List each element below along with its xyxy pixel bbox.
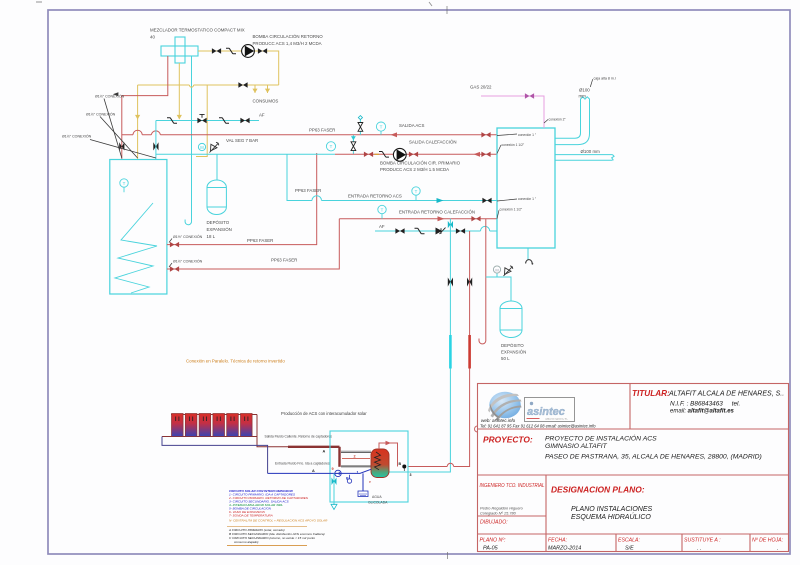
svg-text:PASEO DE PASTRANA, 35, ALCALA: PASEO DE PASTRANA, 35, ALCALA DE HENARES… <box>545 454 762 461</box>
svg-text:Colegiado Nº 15.780: Colegiado Nº 15.780 <box>480 511 517 516</box>
svg-text:EXPANSIÓN: EXPANSIÓN <box>207 227 232 232</box>
svg-text:T: T <box>415 189 418 194</box>
svg-text:B: B <box>399 462 402 466</box>
svg-text:Ø1½" CONEXIÓN: Ø1½" CONEXIÓN <box>86 112 116 117</box>
svg-text:EXPANSIÓN: EXPANSIÓN <box>501 350 526 355</box>
svg-text:Ø1½" CONEXIÓN: Ø1½" CONEXIÓN <box>173 234 203 239</box>
svg-text:T: T <box>123 181 126 186</box>
svg-text:Conexión en Paralelo. Técnica: Conexión en Paralelo. Técnica de retorno… <box>186 359 285 364</box>
svg-text:DESIGNACION PLANO:: DESIGNACION PLANO: <box>551 485 645 495</box>
svg-text:DEPÓSITO: DEPÓSITO <box>501 343 524 348</box>
svg-text:Entrada Fluido Frío. Ida a cap: Entrada Fluido Frío. Ida a captadores <box>275 462 330 466</box>
svg-text:T: T <box>381 207 384 212</box>
svg-text:ALTAFIT ALCALA DE HENARES, S..: ALTAFIT ALCALA DE HENARES, S.. <box>668 391 784 398</box>
svg-text:AF: AF <box>259 113 265 118</box>
svg-text:Ø1½" CONEXIÓN: Ø1½" CONEXIÓN <box>95 94 125 99</box>
svg-text:BOMBA CIRCULACIÓN CIR. PRIMARI: BOMBA CIRCULACIÓN CIR. PRIMARIO <box>380 160 461 165</box>
svg-text:Tel: 91 641 87 95 Fax 91 61: Tel: 91 641 87 95 Fax 91 612 64 08 email… <box>480 424 596 429</box>
svg-text:T: T <box>380 125 383 130</box>
svg-text:PA-05: PA-05 <box>483 546 499 552</box>
svg-text:ENTRADA RETORNO ACS: ENTRADA RETORNO ACS <box>348 194 402 199</box>
svg-text:. .: . . <box>697 546 702 552</box>
svg-text:PP63 FASER: PP63 FASER <box>309 128 335 133</box>
svg-text:GIMNASIO ALTAFIT: GIMNASIO ALTAFIT <box>545 443 608 450</box>
svg-text:Ø100: Ø100 <box>579 88 590 93</box>
svg-text:PLANO INSTALACIONES: PLANO INSTALACIONES <box>571 506 653 513</box>
svg-text:PROYECTO:: PROYECTO: <box>483 435 533 445</box>
svg-text:7- SONDA DE TEMPERATURA: 7- SONDA DE TEMPERATURA <box>229 514 273 518</box>
svg-text:M: M <box>200 145 204 150</box>
svg-text:web: asintec.info: web: asintec.info <box>481 418 516 423</box>
svg-text:conexión 1 1/2": conexión 1 1/2" <box>500 208 523 212</box>
svg-text:Producción de ACS con interacu: Producción de ACS con interacumulador so… <box>281 411 367 416</box>
svg-text:GLICOLADA: GLICOLADA <box>368 501 388 505</box>
svg-text:.: . <box>777 546 779 552</box>
svg-text:consumo alejado): consumo alejado) <box>234 540 258 544</box>
svg-text:Ø1½" CONEXIÓN: Ø1½" CONEXIÓN <box>62 134 92 139</box>
svg-text:VAL SEG 7 BAR: VAL SEG 7 BAR <box>226 138 258 143</box>
svg-text:Nº DE HOJA:: Nº DE HOJA: <box>752 538 784 544</box>
svg-text:PP63 FASER: PP63 FASER <box>247 238 273 243</box>
svg-text:conexión 1 ": conexión 1 " <box>518 133 537 137</box>
svg-text:AGUA: AGUA <box>372 495 382 499</box>
svg-text:DEPÓSITO: DEPÓSITO <box>207 220 230 225</box>
svg-text:S/E: S/E <box>625 546 634 552</box>
svg-text:TITULAR:: TITULAR: <box>632 389 670 398</box>
svg-text:T: T <box>330 144 333 149</box>
svg-text:Ø1½" CONEXIÓN: Ø1½" CONEXIÓN <box>173 259 203 264</box>
svg-text:50 L: 50 L <box>501 356 510 361</box>
svg-text:conexión 1 1/2": conexión 1 1/2" <box>502 143 525 147</box>
svg-text:3: 3 <box>410 473 412 477</box>
svg-text:ESQUEMA HIDRAÚLICO: ESQUEMA HIDRAÚLICO <box>571 512 651 521</box>
svg-text:DIBUJADO:: DIBUJADO: <box>480 520 508 526</box>
svg-text:SALIDA CALEFACCIÓN: SALIDA CALEFACCIÓN <box>409 140 457 145</box>
svg-text:conexión 2": conexión 2" <box>549 118 567 122</box>
svg-text:CONSUMOS: CONSUMOS <box>253 99 279 104</box>
svg-text:MEZCLADOR TERMOSTATICO COMPACT: MEZCLADOR TERMOSTATICO COMPACT MIX <box>150 28 245 33</box>
svg-text:Salida Fluido Caliente. Retorn: Salida Fluido Caliente. Retorno de capta… <box>265 434 333 438</box>
svg-text:SALIDA ACS: SALIDA ACS <box>399 123 424 128</box>
svg-text:SUSTITUYE A :: SUSTITUYE A : <box>684 538 721 544</box>
svg-text:e: e <box>369 480 371 484</box>
svg-text:40: 40 <box>150 35 155 40</box>
svg-text:MARZO-2014: MARZO-2014 <box>548 546 581 552</box>
svg-text:FECHA:: FECHA: <box>548 538 568 544</box>
svg-text:ENTRADA RETORNO CALEFACCIÓN: ENTRADA RETORNO CALEFACCIÓN <box>399 210 475 215</box>
svg-text:PLANO Nº:: PLANO Nº: <box>480 538 507 544</box>
svg-text:PP63 FASER: PP63 FASER <box>295 188 321 193</box>
svg-text:GAS 20/22: GAS 20/22 <box>470 85 492 90</box>
svg-text:INGENIERO TCO. INDUSTRIAL: INGENIERO TCO. INDUSTRIAL <box>480 483 545 489</box>
svg-text:N.I.F. : B86843463 tel.: N.I.F. : B86843463 tel. <box>670 401 740 408</box>
svg-text:email: altafit@altafit.es: email: altafit@altafit.es <box>670 409 735 415</box>
svg-text:AF: AF <box>379 224 385 229</box>
svg-text:9: 9 <box>332 467 334 471</box>
svg-text:ESCALA:: ESCALA: <box>618 538 640 544</box>
svg-text:A: A <box>323 450 326 454</box>
svg-text:conexión 1 ": conexión 1 " <box>518 197 537 201</box>
svg-text:M: M <box>495 267 498 272</box>
svg-text:caja alta 8 m.l: caja alta 8 m.l <box>594 77 616 81</box>
svg-text:2: 2 <box>354 454 356 458</box>
svg-text:mm: mm <box>579 93 587 98</box>
svg-text:calidad en ingeniería, S.L.: calidad en ingeniería, S.L. <box>545 419 569 421</box>
svg-text:PRODUCC ACS 2 M3/H 1.5 MCDA: PRODUCC ACS 2 M3/H 1.5 MCDA <box>380 167 449 172</box>
svg-text:asintec: asintec <box>527 406 565 418</box>
svg-text:PROYECTO DE INSTALACIÓN ACS: PROYECTO DE INSTALACIÓN ACS <box>545 434 657 443</box>
svg-text:PRODUCC ACS 1,4 M3/H 2 MCDA: PRODUCC ACS 1,4 M3/H 2 MCDA <box>253 41 322 46</box>
svg-text:18 L: 18 L <box>207 234 216 239</box>
svg-text:BOMBA CIRCULACIÓN RETORNO: BOMBA CIRCULACIÓN RETORNO <box>253 34 324 39</box>
svg-text:PP63 FASER: PP63 FASER <box>271 258 297 263</box>
svg-text:Ø100 mm: Ø100 mm <box>581 149 601 154</box>
svg-text:N- CENTRALITA DE CONTROL + REG: N- CENTRALITA DE CONTROL + REGULACION AC… <box>229 519 328 523</box>
svg-text:A: A <box>312 469 315 473</box>
